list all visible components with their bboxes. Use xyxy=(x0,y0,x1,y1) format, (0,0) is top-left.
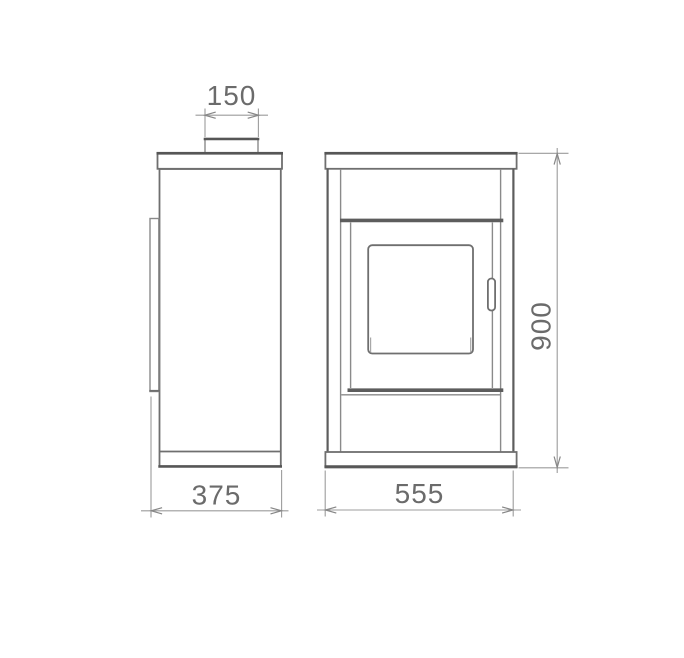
dimension-555: 555 xyxy=(317,471,521,517)
dimension-900: 900 xyxy=(519,148,569,473)
dim-900-label: 900 xyxy=(526,301,557,351)
door-handle xyxy=(488,279,495,311)
side-door-edge-strip xyxy=(150,219,159,392)
dim-375-label: 375 xyxy=(192,480,242,511)
front-base-plinth xyxy=(325,452,516,468)
dim-150-label: 150 xyxy=(207,80,257,111)
side-view xyxy=(149,139,283,467)
dimension-375: 375 xyxy=(141,397,289,518)
stove-dimension-drawing: 150 375 555 900 xyxy=(0,0,684,658)
side-body-outline xyxy=(160,169,281,467)
technical-drawing-canvas: 150 375 555 900 xyxy=(0,0,684,658)
dim-555-label: 555 xyxy=(395,478,445,509)
front-top-plate xyxy=(325,153,516,169)
front-view xyxy=(324,153,517,468)
door-glass-window xyxy=(368,245,473,353)
dimension-150: 150 xyxy=(196,80,269,137)
flue-collar-outline xyxy=(205,139,258,154)
side-top-plate xyxy=(158,153,283,169)
